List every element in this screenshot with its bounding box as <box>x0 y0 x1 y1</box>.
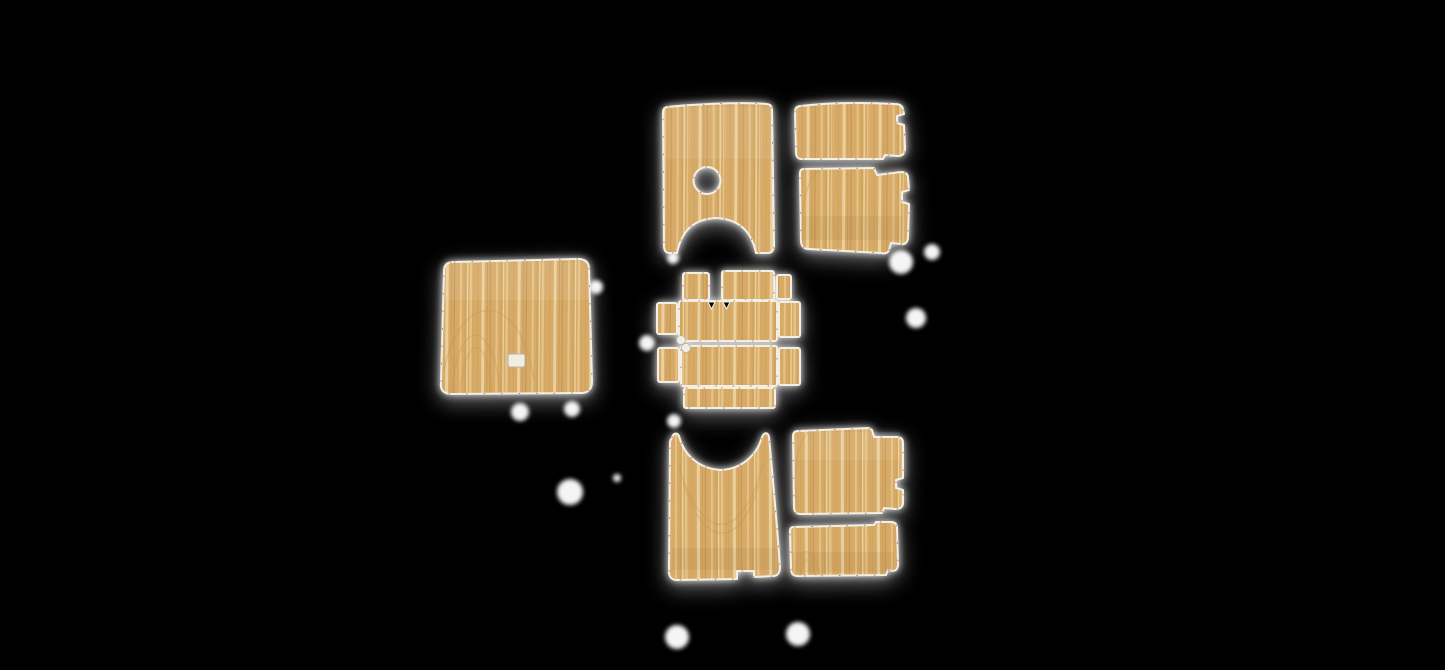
grain-band <box>445 262 588 300</box>
shadow-blob <box>589 280 603 294</box>
latch-cutout <box>508 354 525 367</box>
shadow-blob <box>613 474 621 482</box>
shadow-blob <box>665 625 689 649</box>
shadow-blob <box>924 244 940 260</box>
console-tab-small-right <box>777 275 791 299</box>
shadow-blob <box>511 403 529 421</box>
side-mat-upper-right <box>795 103 905 159</box>
shadow-blob <box>667 414 681 428</box>
shadow-blob <box>564 401 580 417</box>
shadow-blob <box>639 335 655 351</box>
grain-band <box>666 107 770 159</box>
console-wing-left-upper <box>657 303 677 334</box>
shadow-blob <box>889 250 913 274</box>
product-image-canvas <box>0 0 1445 670</box>
grain-band <box>803 216 903 240</box>
console-wing-left-lower <box>658 348 679 382</box>
side-mat-lower-right <box>800 168 909 253</box>
rear-side-mat-lower-right <box>790 522 898 576</box>
engine-cover-mat <box>441 259 592 394</box>
rear-floor-mat-left <box>669 433 780 580</box>
console-mat-set <box>657 271 800 408</box>
front-floor-mat-left <box>663 103 774 253</box>
console-round-notch <box>677 336 686 345</box>
console-wing-right-lower <box>779 348 800 385</box>
console-tab-small-left <box>683 273 709 300</box>
rear-side-mat-upper-right <box>793 428 903 514</box>
grain-band <box>792 552 894 572</box>
console-tab-wide-center <box>722 271 774 300</box>
console-tab-bottom <box>684 388 775 408</box>
console-round-notch <box>682 344 691 353</box>
grain-band <box>796 432 900 460</box>
console-wing-right-upper <box>779 302 800 337</box>
shadow-blob <box>557 479 583 505</box>
shadow-blob <box>906 308 926 328</box>
shadow-blob <box>786 622 810 646</box>
grain-band <box>672 548 776 570</box>
console-band-lower <box>681 346 777 386</box>
